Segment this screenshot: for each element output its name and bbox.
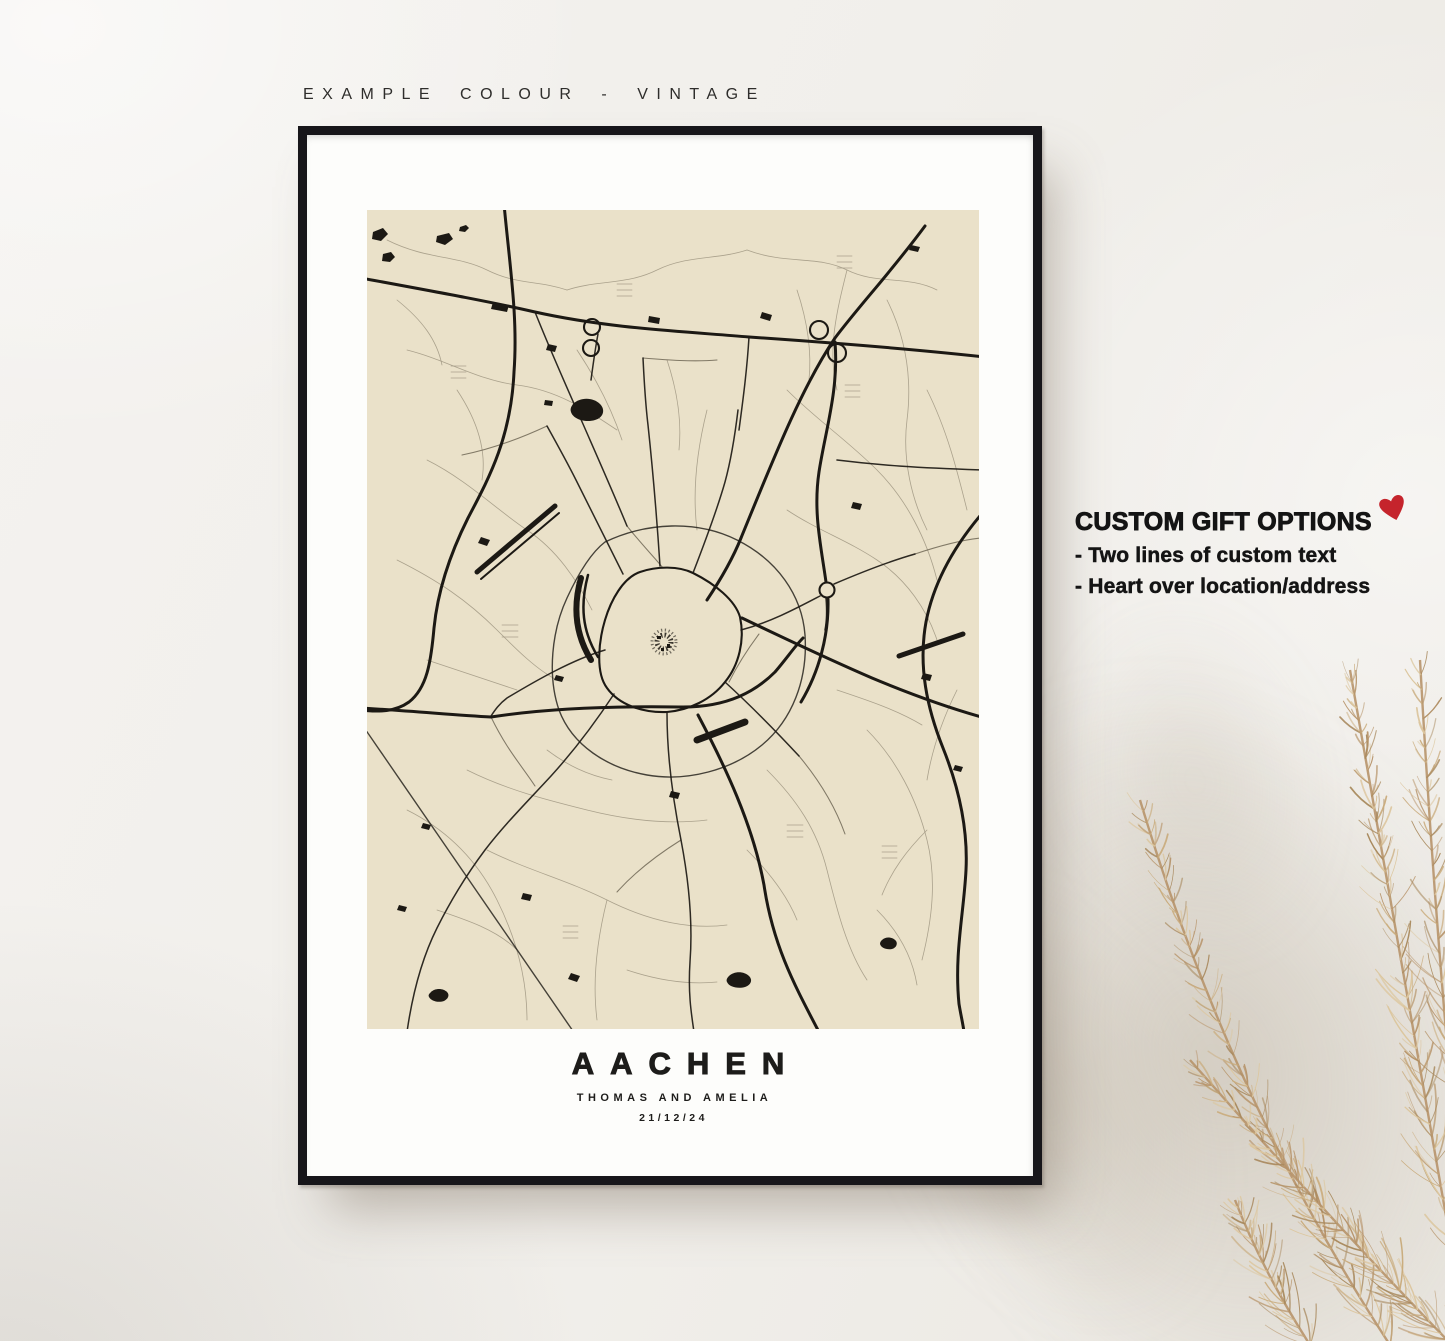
product-photo-scene: EXAMPLE COLOUR - VINTAGE <box>0 0 1445 1341</box>
map-railway <box>367 726 575 1029</box>
poster-custom-line-2: 21/12/24 <box>307 1112 1037 1124</box>
custom-gift-options-block: CUSTOM GIFT OPTIONS - Two lines of custo… <box>1075 508 1372 599</box>
map-centre-speckle <box>652 630 676 654</box>
wall-shadow <box>1023 573 1367 988</box>
aachen-city-map <box>367 210 979 1029</box>
map-svg <box>367 210 979 1029</box>
bullet-custom-text: - Two lines of custom text <box>1075 544 1372 568</box>
example-colour-caption: EXAMPLE COLOUR - VINTAGE <box>303 86 766 104</box>
custom-gift-options-heading: CUSTOM GIFT OPTIONS <box>1075 508 1372 537</box>
map-secondary-roads <box>407 312 979 1029</box>
map-minor-roads <box>387 240 967 1020</box>
map-major-roads <box>367 210 979 1029</box>
poster-city-title: AACHEN <box>307 1046 1049 1082</box>
heart-icon <box>1375 490 1412 525</box>
map-mid-roads <box>462 358 979 892</box>
poster-frame: AACHEN THOMAS AND AMELIA 21/12/24 <box>298 126 1042 1185</box>
bullet-heart-location: - Heart over location/address <box>1075 575 1372 599</box>
poster-custom-line-1: THOMAS AND AMELIA <box>307 1092 1038 1104</box>
